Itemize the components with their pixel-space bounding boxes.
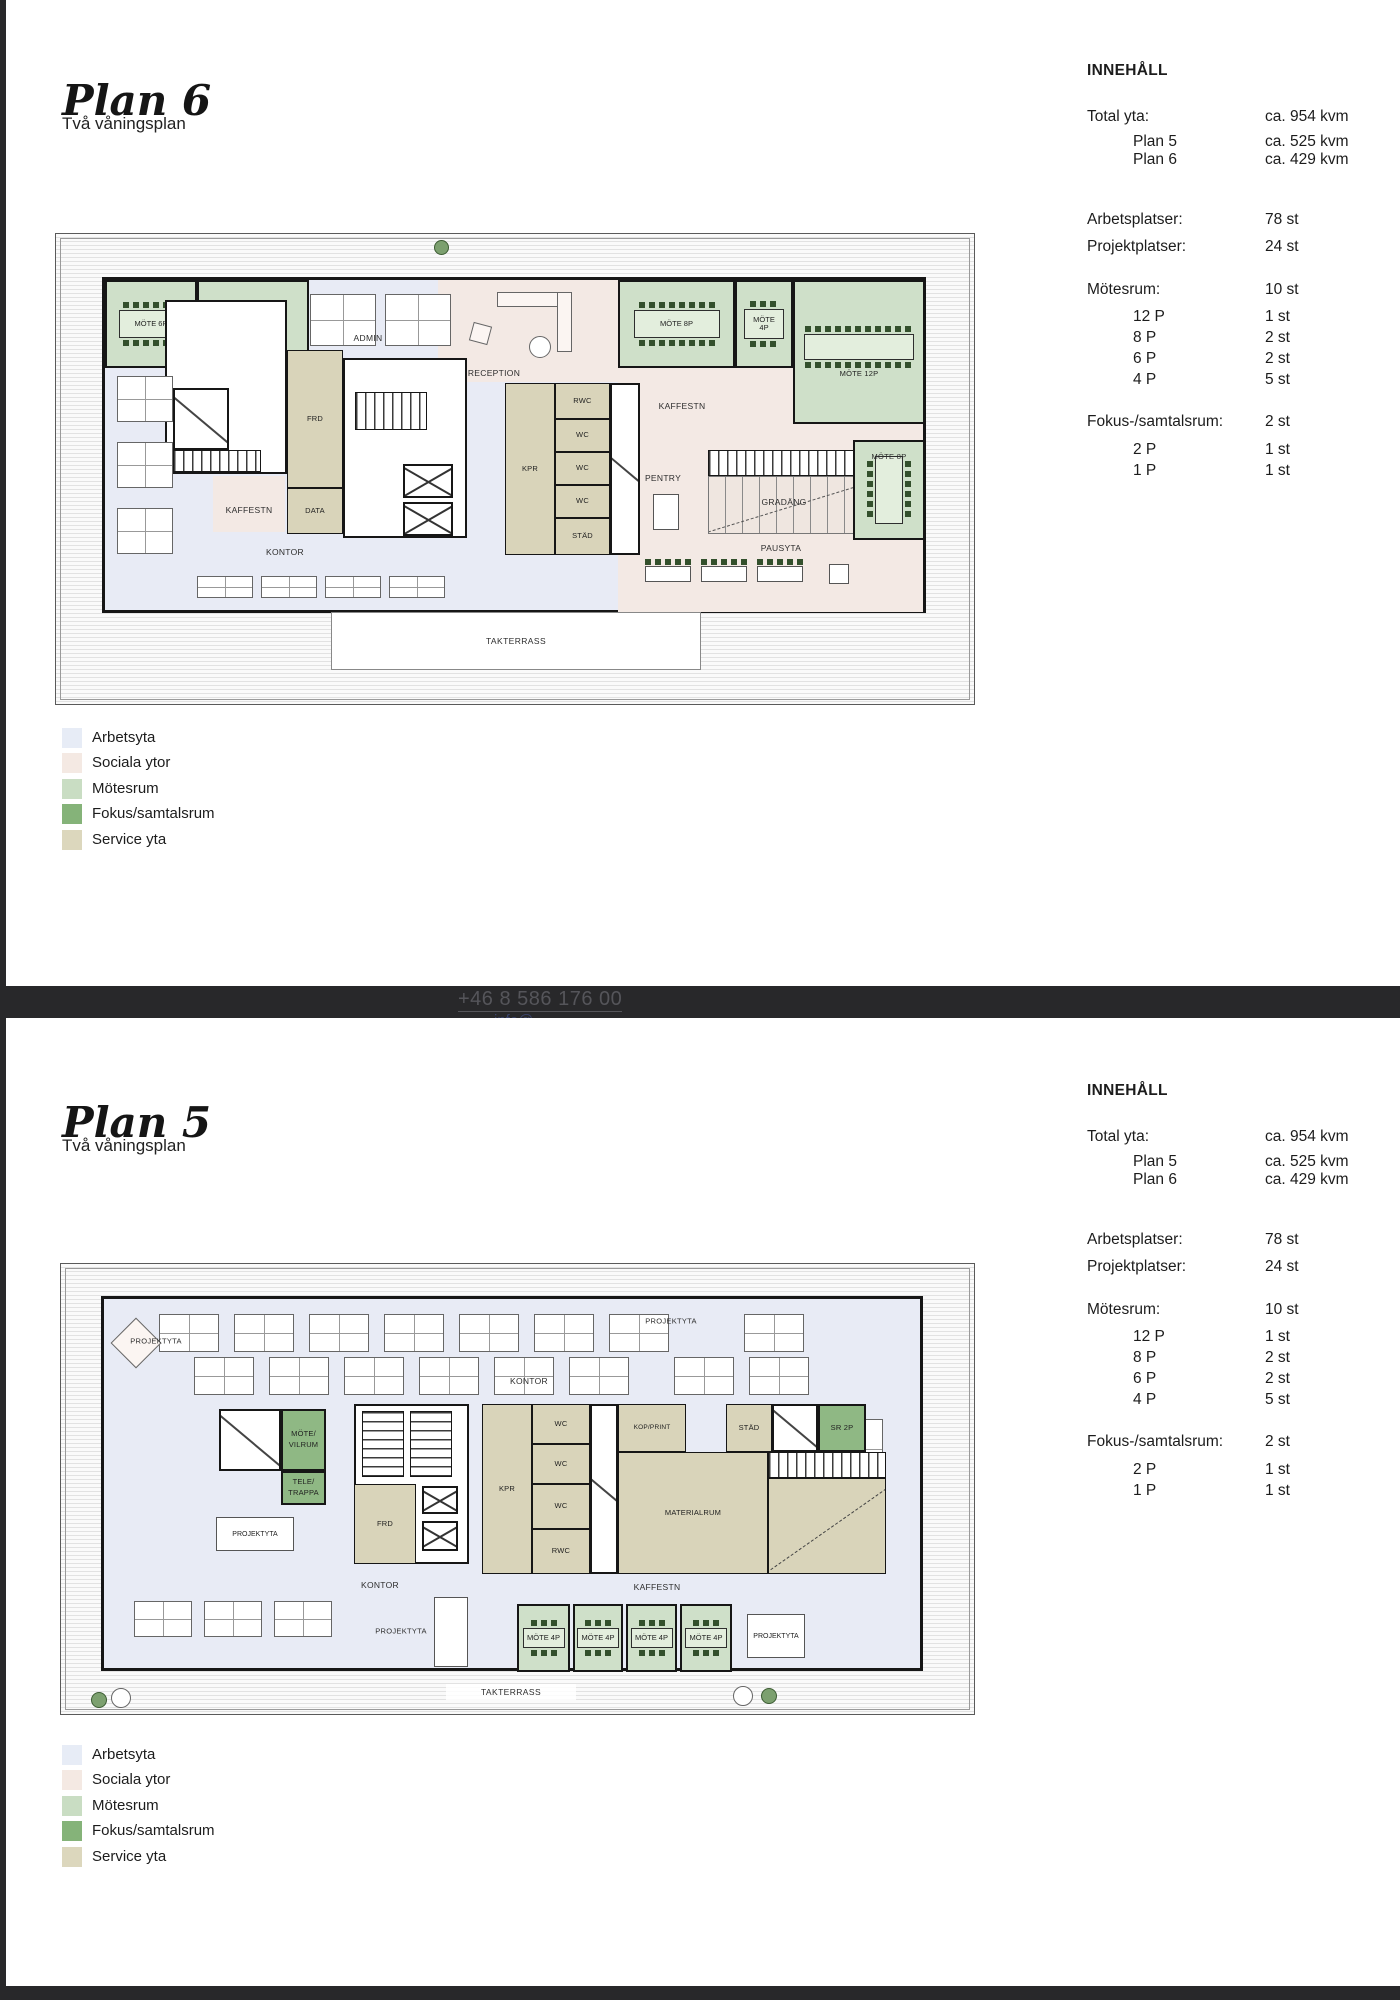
room-wc: WC (532, 1404, 590, 1444)
stairs (355, 392, 427, 430)
stat-value: ca. 525 kvm (1265, 133, 1349, 151)
projektyta-table: PROJEKTYTA (747, 1614, 805, 1658)
meeting-table: MÖTE 4P (577, 1628, 619, 1648)
room-mote-8p: MÖTE 8P (853, 440, 925, 540)
chair-col-icon (905, 461, 911, 519)
desk-icon (385, 294, 451, 346)
desk-icon (744, 1314, 804, 1352)
legend-swatch-sociala (62, 1770, 82, 1790)
chair-row-icon (750, 341, 778, 347)
area-label-projektyta: PROJEKTYTA (130, 1337, 182, 1346)
chair-row-icon (693, 1650, 719, 1656)
legend-label: Sociala ytor (92, 754, 170, 771)
stat-row: Mötesrum:10 st (1087, 281, 1160, 299)
stat-value: 1 st (1265, 1328, 1290, 1346)
stat-value: 2 st (1265, 1349, 1290, 1367)
stat-label: Plan 5 (1133, 133, 1177, 150)
stat-value: 78 st (1265, 1231, 1299, 1249)
area-label-kaffestn: KAFFESTN (659, 401, 706, 411)
room-stad: STÄD (726, 1404, 772, 1452)
room-label: WC (576, 497, 589, 506)
room-wc: WC (555, 452, 610, 485)
stat-label: 12 P (1133, 308, 1165, 325)
stat-label: Total yta: (1087, 1128, 1149, 1145)
table-icon (829, 564, 849, 584)
room-kpr: KPR (482, 1404, 532, 1574)
desk-icon (159, 1314, 219, 1352)
desk-icon (569, 1357, 629, 1395)
projektyta-table (434, 1597, 468, 1667)
stair-landing (219, 1409, 281, 1471)
stat-value: 1 st (1265, 1482, 1290, 1500)
elevator (403, 502, 453, 536)
stat-value: 24 st (1265, 1258, 1299, 1276)
meeting-table: MÖTE 4P (685, 1628, 727, 1648)
stat-value: 1 st (1265, 1461, 1290, 1479)
stat-label: Projektplatser: (1087, 238, 1186, 255)
chair-row-icon (757, 559, 803, 565)
elevator (403, 464, 453, 498)
area-label-kontor: KONTOR (266, 547, 304, 557)
area-label-pausyta: PAUSYTA (761, 543, 802, 553)
stat-row: Projektplatser:24 st (1087, 1258, 1186, 1276)
legend-label: Mötesrum (92, 780, 159, 797)
stat-label: 6 P (1133, 350, 1156, 367)
area-label-kontor: KONTOR (510, 1376, 548, 1386)
desk-icon (197, 576, 253, 598)
floorplan-plan5: MÖTE/VILRUM TELE/TRAPPA PROJEKTYTA FRD K… (60, 1263, 975, 1715)
area-label-takterrass: TAKTERRASS (486, 636, 546, 646)
innehall-sidebar: INNEHÅLL Total yta:ca. 954 kvm Plan 5ca.… (1087, 62, 1387, 482)
room-mote-4p: MÖTE 4P (626, 1604, 677, 1672)
area-label-projektyta: PROJEKTYTA (753, 1633, 798, 1640)
chair-row-icon (805, 362, 913, 368)
room-label: KOP/PRINT (634, 1424, 671, 1431)
room-kpr: KPR (505, 383, 555, 555)
room-mote-4p: MÖTE 4P (517, 1604, 570, 1672)
desk-icon (261, 576, 317, 598)
room-mote-4p: MÖTE4P (735, 280, 793, 368)
chair-row-icon (639, 1650, 665, 1656)
desk-icon (117, 376, 173, 422)
floor-slab: MÖTE/VILRUM TELE/TRAPPA PROJEKTYTA FRD K… (101, 1296, 923, 1671)
stat-row: 8 P2 st (1087, 1349, 1156, 1367)
room-label: RWC (552, 1547, 570, 1556)
plant-icon (91, 1692, 107, 1708)
desk-icon (117, 508, 173, 554)
room-label: VILRUM (289, 1441, 319, 1450)
room-wc: WC (555, 419, 610, 452)
elevator (422, 1521, 458, 1551)
innehall-heading: INNEHÅLL (1087, 62, 1168, 80)
stat-value: 1 st (1265, 462, 1290, 480)
meeting-table: MÖTE 4P (631, 1628, 673, 1648)
room-label: FRD (307, 415, 323, 424)
legend-swatch-arbetsyta (62, 728, 82, 748)
room-label: STÄD (739, 1424, 760, 1433)
stat-label: Plan 5 (1133, 1153, 1177, 1170)
table-icon (701, 566, 747, 582)
desk-icon (269, 1357, 329, 1395)
stat-value: 1 st (1265, 441, 1290, 459)
room-mote-4p: MÖTE 4P (680, 1604, 732, 1672)
room-label: MATERIALRUM (665, 1509, 721, 1518)
stat-row: Arbetsplatser:78 st (1087, 211, 1183, 229)
chair-row-icon (531, 1650, 557, 1656)
room-label: MÖTE 4P (582, 1634, 615, 1642)
area-label-kaffestn: KAFFESTN (226, 505, 273, 515)
stat-label: 4 P (1133, 371, 1156, 388)
stat-value: ca. 429 kvm (1265, 1171, 1349, 1189)
area-label-gradang: GRADÄNG (761, 497, 806, 507)
legend-label: Service yta (92, 831, 166, 848)
desk-icon (204, 1601, 262, 1637)
chair-row-icon (750, 301, 778, 307)
meeting-table: MÖTE 8P (634, 310, 720, 338)
desk-icon (194, 1357, 254, 1395)
stat-label: 8 P (1133, 1349, 1156, 1366)
room-label: KPR (522, 465, 538, 474)
desk-icon (749, 1357, 809, 1395)
room-rwc: RWC (532, 1529, 590, 1574)
room-tele-trappa: TELE/TRAPPA (281, 1471, 326, 1505)
legend-label: Arbetsyta (92, 729, 155, 746)
area-label-pentry: PENTRY (645, 473, 681, 483)
stairs (173, 450, 261, 472)
projektyta-table: PROJEKTYTA (216, 1517, 294, 1551)
innehall-heading: INNEHÅLL (1087, 1082, 1168, 1100)
sofa-icon (557, 292, 572, 352)
chair-col-icon (867, 461, 873, 519)
room-label: TRAPPA (288, 1489, 319, 1498)
legend-swatch-motesrum (62, 1796, 82, 1816)
stat-row: 12 P1 st (1087, 1328, 1165, 1346)
stat-row: 1 P1 st (1087, 462, 1156, 480)
chair-row-icon (701, 559, 747, 565)
room-frd: FRD (354, 1484, 416, 1564)
stat-label: Fokus-/samtalsrum: (1087, 413, 1223, 430)
stat-value: ca. 429 kvm (1265, 151, 1349, 169)
table-icon (757, 566, 803, 582)
legend-swatch-arbetsyta (62, 1745, 82, 1765)
plant-icon (434, 240, 449, 255)
room-mote-12p: MÖTE 12P (793, 280, 925, 424)
room-rwc: RWC (555, 383, 610, 419)
desk-icon (234, 1314, 294, 1352)
stat-label: Arbetsplatser: (1087, 1231, 1183, 1248)
stat-label: Mötesrum: (1087, 281, 1160, 298)
room-label: MÖTE 4P (635, 1634, 668, 1642)
stat-value: 5 st (1265, 1391, 1290, 1409)
room-label: WC (555, 1460, 568, 1469)
meeting-table (804, 334, 914, 360)
area-label-projektyta: PROJEKTYTA (232, 1531, 277, 1538)
page-subtitle-plan6: Två våningsplan (62, 114, 186, 134)
room-label: DATA (305, 507, 325, 516)
stat-label: 6 P (1133, 1370, 1156, 1387)
legend-swatch-fokus (62, 804, 82, 824)
desk-icon (674, 1357, 734, 1395)
room-label: MÖTE 4P (527, 1634, 560, 1642)
room-label: WC (555, 1502, 568, 1511)
room-label: STÄD (572, 532, 593, 541)
legend-swatch-motesrum (62, 779, 82, 799)
room-label: MÖTE 12P (840, 370, 879, 379)
room-mote-8p: MÖTE 8P (618, 280, 735, 368)
desk-icon (117, 442, 173, 488)
stat-row: Plan 5ca. 525 kvm (1087, 1153, 1177, 1171)
room-label: MÖTE 8P (871, 452, 906, 461)
stair-landing (772, 1404, 818, 1452)
stair-landing (173, 388, 229, 450)
stat-row: 2 P1 st (1087, 441, 1156, 459)
chair-row-icon (639, 302, 715, 308)
stat-value: 10 st (1265, 1301, 1299, 1319)
desk-icon (309, 1314, 369, 1352)
stat-label: Mötesrum: (1087, 1301, 1160, 1318)
legend-swatch-fokus (62, 1821, 82, 1841)
terrace: TAKTERRASS (446, 1684, 576, 1700)
stat-label: Total yta: (1087, 108, 1149, 125)
stat-value: 2 st (1265, 1433, 1290, 1451)
room-label: MÖTE 8P (660, 320, 693, 328)
stat-row: Arbetsplatser:78 st (1087, 1231, 1183, 1249)
stat-value: 1 st (1265, 308, 1290, 326)
desk-icon (134, 1601, 192, 1637)
page-subtitle-plan5: Två våningsplan (62, 1136, 186, 1156)
legend-label: Arbetsyta (92, 1746, 155, 1763)
desk-icon (389, 576, 445, 598)
room-label: KPR (499, 1485, 515, 1494)
room-mote-vilrum: MÖTE/VILRUM (281, 1409, 326, 1471)
terrace-table-icon (111, 1688, 131, 1708)
chair-row-icon (639, 1620, 665, 1626)
stat-row: Fokus-/samtalsrum:2 st (1087, 413, 1223, 431)
terrace-table-icon (733, 1686, 753, 1706)
room-wc: WC (532, 1484, 590, 1529)
stat-row: 6 P2 st (1087, 1370, 1156, 1388)
room-label: MÖTE/ (291, 1430, 316, 1439)
room-wc: WC (532, 1444, 590, 1484)
table-icon (645, 566, 691, 582)
stat-value: 2 st (1265, 329, 1290, 347)
legend-label: Mötesrum (92, 1797, 159, 1814)
area-label-projektyta: PROJEKTYTA (645, 1317, 697, 1326)
kaffestn-zone (213, 476, 285, 532)
stat-label: 1 P (1133, 462, 1156, 479)
room-sr-2p: SR 2P (818, 1404, 866, 1452)
chair-row-icon (531, 1620, 557, 1626)
stat-value: 5 st (1265, 371, 1290, 389)
chair-row-icon (585, 1650, 611, 1656)
room-label: WC (576, 464, 589, 473)
sofa-icon (497, 292, 561, 307)
legend-label: Fokus/samtalsrum (92, 1822, 215, 1839)
shaft (610, 383, 640, 555)
phone-link[interactable]: +46 8 586 176 00 (458, 988, 622, 1012)
chair-row-icon (585, 1620, 611, 1626)
room-frd: FRD (287, 350, 343, 488)
room-wc: WC (555, 485, 610, 518)
room-label: MÖTE 4P (690, 1634, 723, 1642)
room-materialrum: MATERIALRUM (618, 1452, 768, 1574)
stat-value: ca. 954 kvm (1265, 108, 1349, 126)
stairs (410, 1411, 452, 1477)
area-label-kaffestn: KAFFESTN (634, 1582, 681, 1592)
legend-swatch-sociala (62, 753, 82, 773)
stat-label: Projektplatser: (1087, 1258, 1186, 1275)
stat-label: 2 P (1133, 441, 1156, 458)
stat-row: 2 P1 st (1087, 1461, 1156, 1479)
chair-row-icon (639, 340, 715, 346)
stat-value: 2 st (1265, 413, 1290, 431)
stat-row: 12 P1 st (1087, 308, 1165, 326)
stat-value: 2 st (1265, 1370, 1290, 1388)
document: Plan 6 Två våningsplan INNEHÅLL Total yt… (0, 0, 1400, 2000)
room-label: FRD (377, 1520, 393, 1529)
table-icon (529, 336, 551, 358)
room-data: DATA (287, 488, 343, 534)
stat-row: 6 P2 st (1087, 350, 1156, 368)
stat-label: 8 P (1133, 329, 1156, 346)
stat-row: 1 P1 st (1087, 1482, 1156, 1500)
legend-swatch-service (62, 1847, 82, 1867)
desk-icon (534, 1314, 594, 1352)
meeting-table: MÖTE4P (744, 309, 784, 339)
stat-value: 10 st (1265, 281, 1299, 299)
stat-row: Plan 6ca. 429 kvm (1087, 1171, 1177, 1189)
room-stad: STÄD (555, 518, 610, 555)
desk-icon (274, 1601, 332, 1637)
area-label-projektyta: PROJEKTYTA (375, 1627, 427, 1636)
desk-icon (325, 576, 381, 598)
legend-swatch-service (62, 830, 82, 850)
stat-label: 2 P (1133, 1461, 1156, 1478)
stat-value: ca. 525 kvm (1265, 1153, 1349, 1171)
stat-label: Plan 6 (1133, 151, 1177, 168)
gradang-stairs (708, 450, 865, 476)
page-edge-left (0, 0, 6, 2000)
room-label: SR 2P (831, 1424, 854, 1433)
stat-row: Mötesrum:10 st (1087, 1301, 1160, 1319)
meeting-table: MÖTE 4P (523, 1628, 565, 1648)
room-mote-4p: MÖTE 4P (573, 1604, 623, 1672)
chair-row-icon (693, 1620, 719, 1626)
desk-icon (344, 1357, 404, 1395)
legend-label: Service yta (92, 1848, 166, 1865)
stat-row: Total yta:ca. 954 kvm (1087, 108, 1149, 126)
stat-label: 1 P (1133, 1482, 1156, 1499)
page-edge-bottom (0, 1986, 1400, 2000)
stat-label: 4 P (1133, 1391, 1156, 1408)
chair-row-icon (645, 559, 691, 565)
room-kop-print: KOP/PRINT (618, 1404, 686, 1452)
area-label-takterrass: TAKTERRASS (481, 1687, 541, 1697)
room-label: WC (576, 431, 589, 440)
desk-icon (459, 1314, 519, 1352)
room-label: RWC (573, 397, 591, 406)
area-label-admin: ADMIN (354, 333, 383, 343)
email-link-fragment[interactable]: info@ (494, 1012, 533, 1018)
open-void (768, 1478, 886, 1574)
desk-icon (419, 1357, 479, 1395)
stat-value: ca. 954 kvm (1265, 1128, 1349, 1146)
innehall-sidebar: INNEHÅLL Total yta:ca. 954 kvm Plan 5ca.… (1087, 1082, 1387, 1502)
table-icon (653, 494, 679, 530)
chair-row-icon (805, 326, 913, 332)
room-label: WC (555, 1420, 568, 1429)
stat-label: Arbetsplatser: (1087, 211, 1183, 228)
stairs (362, 1411, 404, 1477)
desk-icon (384, 1314, 444, 1352)
floorplan-plan6: MÖTE 6P MÖTE 6P MÖTE 8P MÖTE4P (55, 233, 975, 705)
area-label-kontor: KONTOR (361, 1580, 399, 1590)
stat-row: Fokus-/samtalsrum:2 st (1087, 1433, 1223, 1451)
stat-row: Plan 6ca. 429 kvm (1087, 151, 1177, 169)
stat-value: 2 st (1265, 350, 1290, 368)
area-label-reception: RECEPTION (468, 368, 520, 378)
stat-row: Projektplatser:24 st (1087, 238, 1186, 256)
stairs (768, 1452, 886, 1478)
room-label: TELE/ (293, 1478, 315, 1487)
elevator (422, 1486, 458, 1514)
page-footer-band: +46 8 586 176 00 info@ (0, 986, 1400, 1018)
legend-label: Sociala ytor (92, 1771, 170, 1788)
stat-row: 4 P5 st (1087, 371, 1156, 389)
room-label: 4P (759, 324, 768, 332)
stat-label: Plan 6 (1133, 1171, 1177, 1188)
stat-label: Fokus-/samtalsrum: (1087, 1433, 1223, 1450)
plant-icon (761, 1688, 777, 1704)
stat-row: 8 P2 st (1087, 329, 1156, 347)
stat-value: 78 st (1265, 211, 1299, 229)
room-label: MÖTE 6P (135, 320, 168, 328)
shaft (590, 1404, 618, 1574)
floor-slab: MÖTE 6P MÖTE 6P MÖTE 8P MÖTE4P (102, 277, 926, 613)
stat-label: 12 P (1133, 1328, 1165, 1345)
stat-row: 4 P5 st (1087, 1391, 1156, 1409)
stat-value: 24 st (1265, 238, 1299, 256)
meeting-table (875, 456, 903, 524)
legend-label: Fokus/samtalsrum (92, 805, 215, 822)
stat-row: Total yta:ca. 954 kvm (1087, 1128, 1149, 1146)
stat-row: Plan 5ca. 525 kvm (1087, 133, 1177, 151)
terrace: TAKTERRASS (331, 612, 701, 670)
